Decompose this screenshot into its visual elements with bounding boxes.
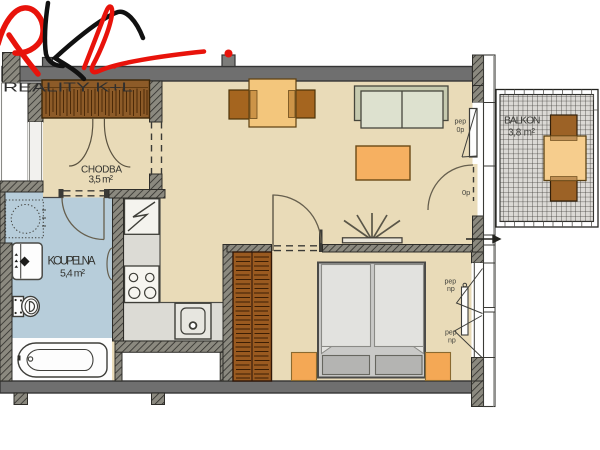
svg-text:np: np xyxy=(448,338,456,345)
svg-text:pep: pep xyxy=(455,119,467,126)
svg-text:BALKON: BALKON xyxy=(504,115,541,127)
svg-text:REALITY K+L: REALITY K+L xyxy=(3,80,133,95)
svg-text:KOUPELNA: KOUPELNA xyxy=(48,256,96,268)
svg-text:pep: pep xyxy=(445,279,457,286)
svg-text:3,8 m²: 3,8 m² xyxy=(508,128,536,139)
svg-text:3,5 m²: 3,5 m² xyxy=(89,175,114,186)
svg-text:0p: 0p xyxy=(457,127,465,134)
svg-text:5,4 m²: 5,4 m² xyxy=(60,268,86,280)
svg-text:pep: pep xyxy=(445,330,457,337)
svg-text:0p: 0p xyxy=(462,188,470,197)
svg-text:np: np xyxy=(447,286,455,293)
